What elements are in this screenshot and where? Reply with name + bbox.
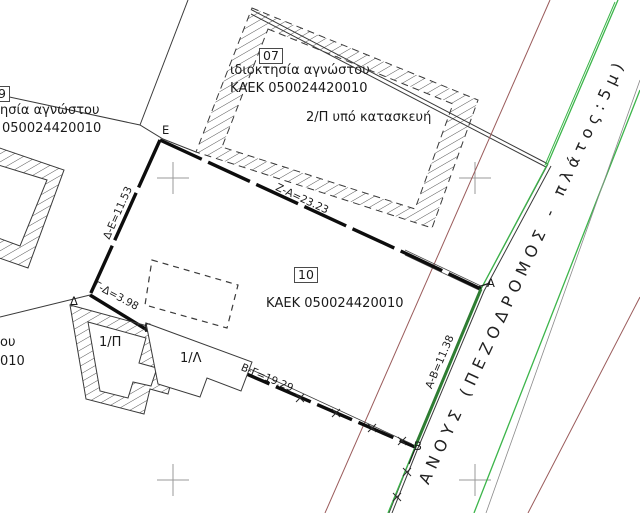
parcel-10-number-box: 10 [294, 267, 318, 283]
point-b-label: Β [414, 440, 422, 453]
building-1l-label: 1/Λ [180, 352, 202, 367]
point-d-label: Δ [70, 295, 78, 308]
parcel-09-owner-fragment: ησία αγνώστου [0, 104, 100, 119]
boundary-d-to-e [90, 140, 160, 295]
parcel-09-number-box: 9 [0, 86, 10, 102]
building-1p-label: 1/Π [99, 336, 121, 351]
parcel-07-number-box: 07 [259, 48, 283, 64]
parcel-10-kaek-label: ΚΑΕΚ 050024420010 [266, 297, 404, 312]
point-e-label: Ε [162, 124, 169, 137]
point-a-label: Α [487, 277, 495, 290]
point-g-label: Γ [144, 322, 150, 335]
parcel-07-owner-label: ιδιοκτησία αγνώστου [230, 64, 370, 79]
left-fragment-line2: 010 [0, 355, 25, 370]
cadastral-map-canvas: 07 ιδιοκτησία αγνώστου ΚΑΕΚ 050024420010… [0, 0, 640, 513]
neighbour-building-hatched [0, 142, 64, 268]
parcel-09-kaek-fragment: 050024420010 [2, 122, 101, 137]
left-fragment-line1: ου [0, 336, 15, 351]
building-2p-note-label: 2/Π υπό κατασκευή [306, 111, 431, 126]
parcel-07-kaek-label: ΚΑΕΚ 050024420010 [230, 82, 368, 97]
dashed-structure-outline [145, 260, 238, 328]
